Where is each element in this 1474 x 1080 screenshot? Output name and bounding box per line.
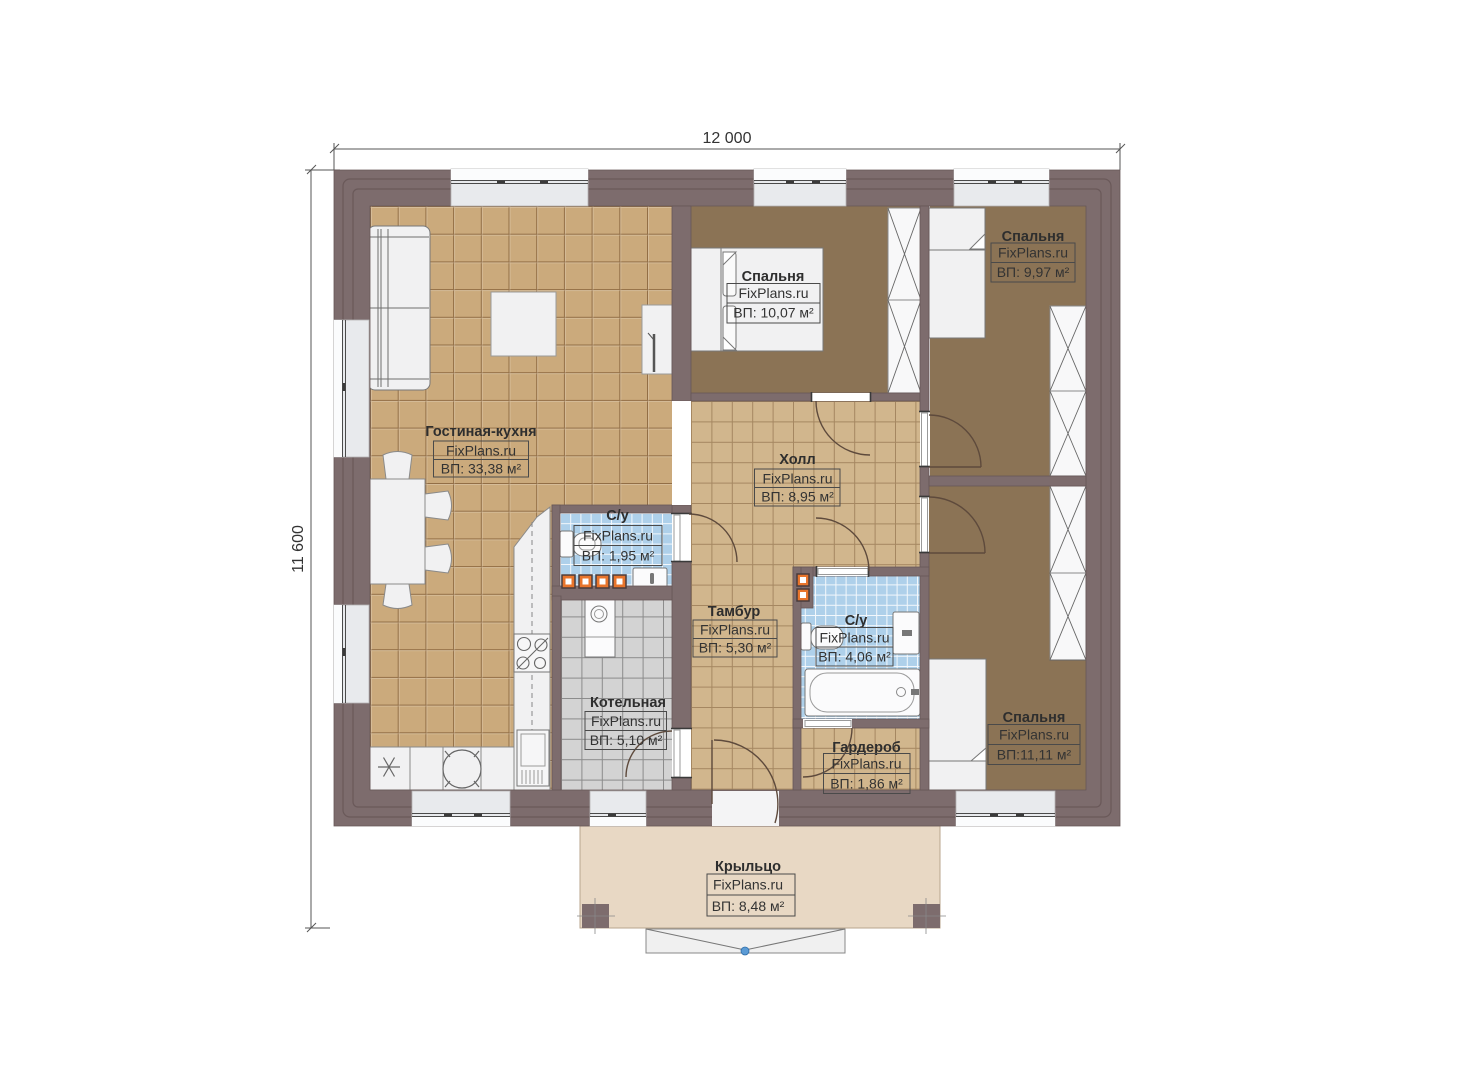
svg-text:Тамбур: Тамбур [708, 604, 761, 620]
svg-text:ВП: 4,06 м²: ВП: 4,06 м² [818, 649, 891, 665]
svg-text:FixPlans.ru: FixPlans.ru [998, 245, 1068, 261]
svg-text:Гостиная-кухня: Гостиная-кухня [425, 424, 536, 440]
svg-text:FixPlans.ru: FixPlans.ru [738, 285, 808, 301]
svg-text:ВП: 10,07 м²: ВП: 10,07 м² [733, 305, 814, 321]
svg-text:FixPlans.ru: FixPlans.ru [591, 713, 661, 729]
svg-text:ВП: 8,48 м²: ВП: 8,48 м² [712, 898, 785, 914]
svg-text:12 000: 12 000 [703, 130, 752, 147]
svg-text:FixPlans.ru: FixPlans.ru [583, 528, 653, 544]
svg-text:FixPlans.ru: FixPlans.ru [831, 756, 901, 772]
svg-text:FixPlans.ru: FixPlans.ru [999, 727, 1069, 743]
svg-text:Крыльцо: Крыльцо [715, 859, 781, 875]
svg-text:ВП: 8,95 м²: ВП: 8,95 м² [761, 489, 834, 505]
svg-text:FixPlans.ru: FixPlans.ru [446, 443, 516, 459]
svg-text:Холл: Холл [779, 452, 815, 468]
svg-text:ВП: 1,86 м²: ВП: 1,86 м² [830, 776, 903, 792]
svg-text:FixPlans.ru: FixPlans.ru [819, 630, 889, 646]
svg-text:ВП:11,11 м²: ВП:11,11 м² [997, 747, 1072, 763]
svg-text:Спальня: Спальня [1003, 710, 1066, 726]
svg-text:11 600: 11 600 [290, 525, 307, 573]
svg-text:С/у: С/у [845, 613, 868, 629]
svg-text:С/у: С/у [606, 508, 629, 524]
svg-text:FixPlans.ru: FixPlans.ru [762, 471, 832, 487]
svg-text:FixPlans.ru: FixPlans.ru [700, 622, 770, 638]
svg-text:Котельная: Котельная [590, 695, 666, 711]
svg-text:ВП: 33,38 м²: ВП: 33,38 м² [441, 461, 522, 477]
svg-text:FixPlans.ru: FixPlans.ru [713, 877, 783, 893]
svg-text:ВП: 5,10 м²: ВП: 5,10 м² [590, 732, 663, 748]
svg-text:ВП: 9,97 м²: ВП: 9,97 м² [997, 264, 1070, 280]
svg-text:ВП: 1,95 м²: ВП: 1,95 м² [582, 548, 655, 564]
svg-text:Спальня: Спальня [742, 269, 805, 285]
svg-text:ВП: 5,30 м²: ВП: 5,30 м² [699, 640, 772, 656]
